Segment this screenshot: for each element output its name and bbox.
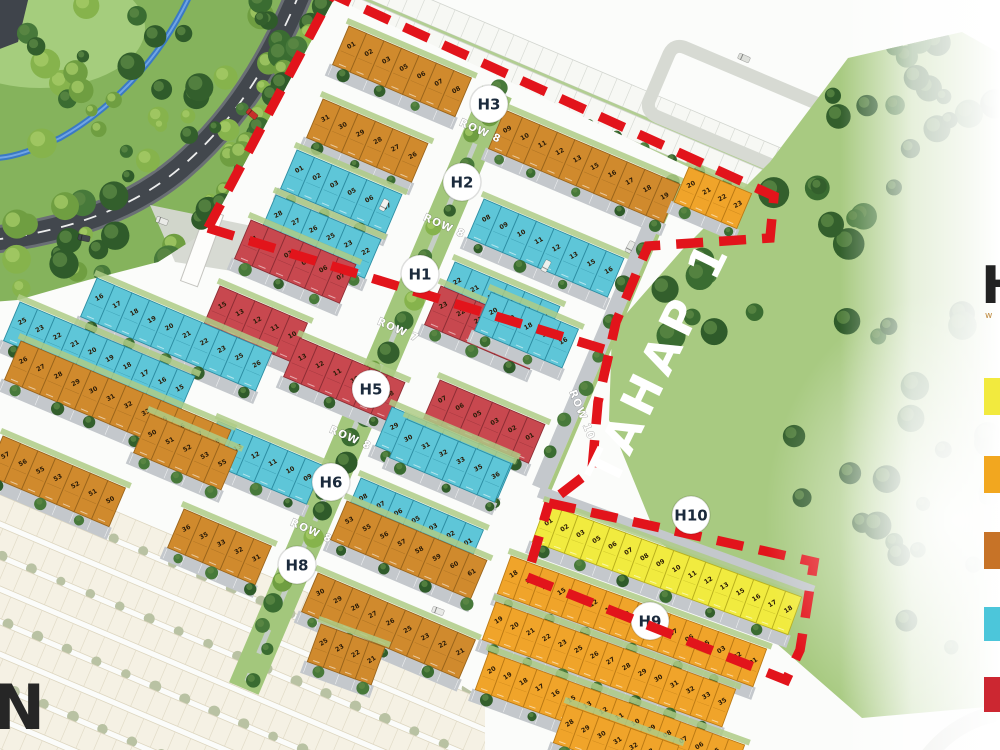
svg-text:H6: H6 [320, 474, 343, 492]
svg-text:H5: H5 [360, 381, 383, 399]
block-marker-h6: H6 [312, 463, 350, 501]
corner-title-fragment: H [981, 256, 1000, 316]
block-marker-h10: H10 [672, 496, 710, 534]
legend-swatch-dark-orange [984, 532, 1000, 569]
site-plan-image: 0102030506070809101112131516171819313029… [0, 0, 1000, 750]
corner-subtitle-fragment: w [985, 311, 992, 321]
svg-text:H1: H1 [409, 266, 432, 284]
block-marker-h2: H2 [443, 163, 481, 201]
block-marker-h3: H3 [470, 85, 508, 123]
masterplan-svg: 0102030506070809101112131516171819313029… [0, 0, 1000, 750]
block-marker-h5: H5 [352, 370, 390, 408]
block-marker-h1: H1 [401, 255, 439, 293]
legend-swatch-red [984, 677, 1000, 712]
legend-swatch-yellow [984, 378, 1000, 415]
svg-text:H10: H10 [674, 507, 707, 525]
legend-swatch-amber [984, 456, 1000, 493]
block-marker-h8: H8 [278, 546, 316, 584]
legend-swatch-cyan [984, 607, 1000, 641]
svg-text:H2: H2 [451, 174, 474, 192]
north-label-fragment: N [0, 671, 45, 744]
svg-text:H8: H8 [286, 557, 309, 575]
svg-text:H3: H3 [478, 96, 501, 114]
